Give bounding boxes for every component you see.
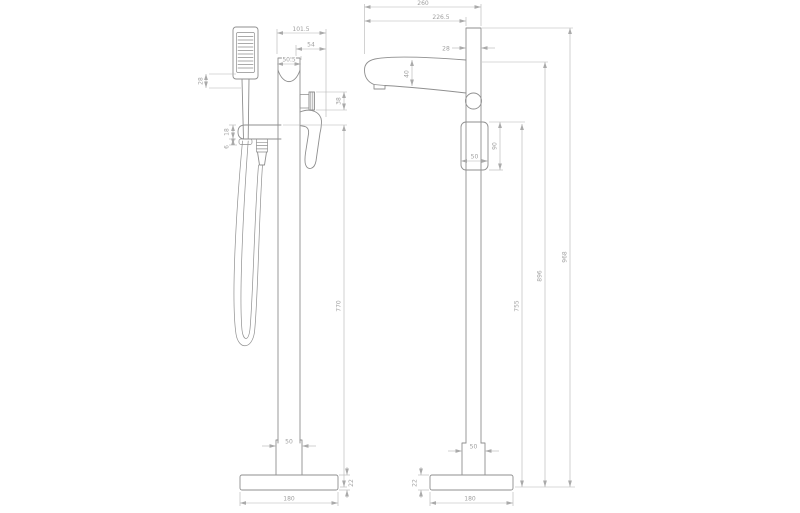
side-view-dimensions: 101.5 54 50.5 28 18 6 38 770 xyxy=(198,26,356,506)
spout-side-curve xyxy=(278,70,300,82)
lever-handle-front xyxy=(461,122,488,170)
dim-label-lever-height: 90 xyxy=(492,142,499,150)
column-front xyxy=(466,28,481,443)
lever-handle-side xyxy=(300,110,322,168)
diverter-knob-front xyxy=(466,93,482,109)
dim-label-overall-height: 968 xyxy=(562,251,569,263)
dim-label-bracket-height: 18 xyxy=(224,128,231,136)
base-front xyxy=(430,475,513,490)
dim-label-lever-projection: 54 xyxy=(307,42,315,49)
dim-label-cartridge-height: 755 xyxy=(514,300,521,312)
dim-label-spout-projection: 226.5 xyxy=(432,14,449,21)
dim-label-knob-height: 38 xyxy=(336,97,343,105)
dim-label-column-width-front: 28 xyxy=(442,46,450,53)
handset-holder-bracket xyxy=(238,125,281,145)
dim-label-holder-height: 770 xyxy=(336,300,343,312)
dim-label-column-width: 50 xyxy=(285,439,293,446)
side-view xyxy=(233,27,338,490)
handset-head xyxy=(233,27,258,79)
handset-handle xyxy=(242,79,249,139)
dim-label-base-height-side: 22 xyxy=(348,479,355,487)
dim-label-column-bottom-width: 50 xyxy=(470,444,478,451)
dim-label-lever-width: 50 xyxy=(471,154,479,161)
diverter-knob-side xyxy=(300,92,315,110)
dim-label-handset-offset: 28 xyxy=(198,77,205,85)
dim-label-base-diameter-front: 180 xyxy=(464,496,476,503)
dim-label-bracket-lip: 6 xyxy=(224,145,231,149)
dim-label-overall-projection: 260 xyxy=(417,0,429,7)
hose-connector xyxy=(257,139,268,165)
front-view xyxy=(365,28,514,490)
dim-label-base-diameter-side: 180 xyxy=(283,496,295,503)
spout-front xyxy=(365,57,467,93)
column-side xyxy=(278,58,300,443)
dim-label-overall-depth: 101.5 xyxy=(292,26,309,33)
dim-label-spout-depth: 40 xyxy=(404,70,411,78)
dim-label-body-depth: 50.5 xyxy=(282,57,296,64)
base-side xyxy=(240,475,338,490)
dim-label-base-height-front: 22 xyxy=(412,479,419,487)
dim-label-spout-height: 896 xyxy=(537,270,544,282)
spec-drawing-page: 101.5 54 50.5 28 18 6 38 770 xyxy=(0,0,800,513)
shower-hose xyxy=(234,141,263,346)
technical-drawing: 101.5 54 50.5 28 18 6 38 770 xyxy=(0,0,800,513)
front-view-dimensions: 260 226.5 28 40 50 90 50 22 180 xyxy=(365,0,576,506)
